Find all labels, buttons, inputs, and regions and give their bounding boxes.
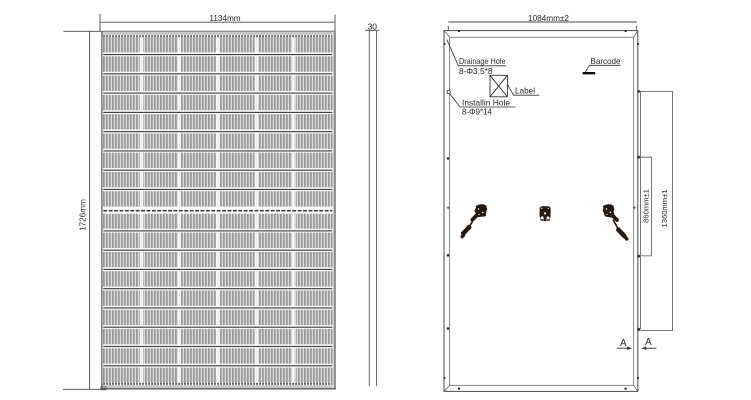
svg-text:Installin Hole: Installin Hole bbox=[462, 98, 510, 107]
svg-text:1134mm: 1134mm bbox=[209, 14, 240, 23]
svg-text:30: 30 bbox=[368, 21, 378, 31]
svg-text:Barcode: Barcode bbox=[591, 57, 621, 66]
svg-text:1726mm: 1726mm bbox=[79, 199, 88, 231]
svg-text:Drainage Hole: Drainage Hole bbox=[459, 57, 506, 66]
svg-text:A: A bbox=[620, 338, 627, 349]
svg-text:A: A bbox=[645, 337, 652, 348]
svg-text:860mm±1: 860mm±1 bbox=[641, 189, 650, 223]
svg-text:8-Φ9*14: 8-Φ9*14 bbox=[462, 108, 492, 117]
svg-text:1084mm±2: 1084mm±2 bbox=[528, 14, 569, 23]
svg-text:8-Φ3.5*8: 8-Φ3.5*8 bbox=[459, 67, 493, 76]
svg-text:1360mm±1: 1360mm±1 bbox=[660, 190, 669, 228]
svg-text:Label: Label bbox=[515, 87, 535, 96]
